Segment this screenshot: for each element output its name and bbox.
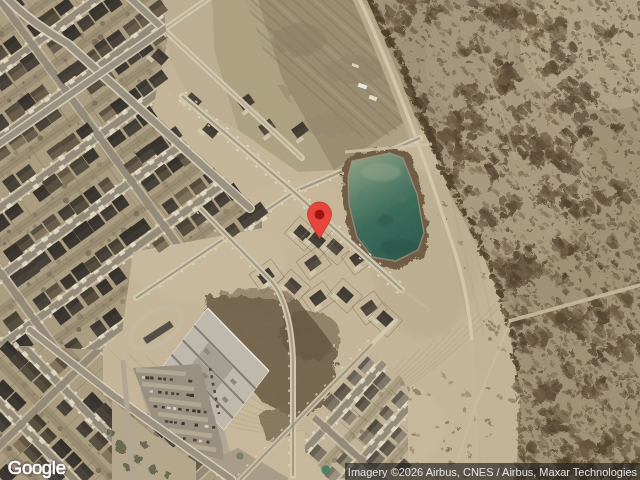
svg-text:Imagery ©2026 Airbus, CNES / A: Imagery ©2026 Airbus, CNES / Airbus, Max…	[348, 466, 638, 478]
svg-text:Google: Google	[8, 457, 66, 478]
